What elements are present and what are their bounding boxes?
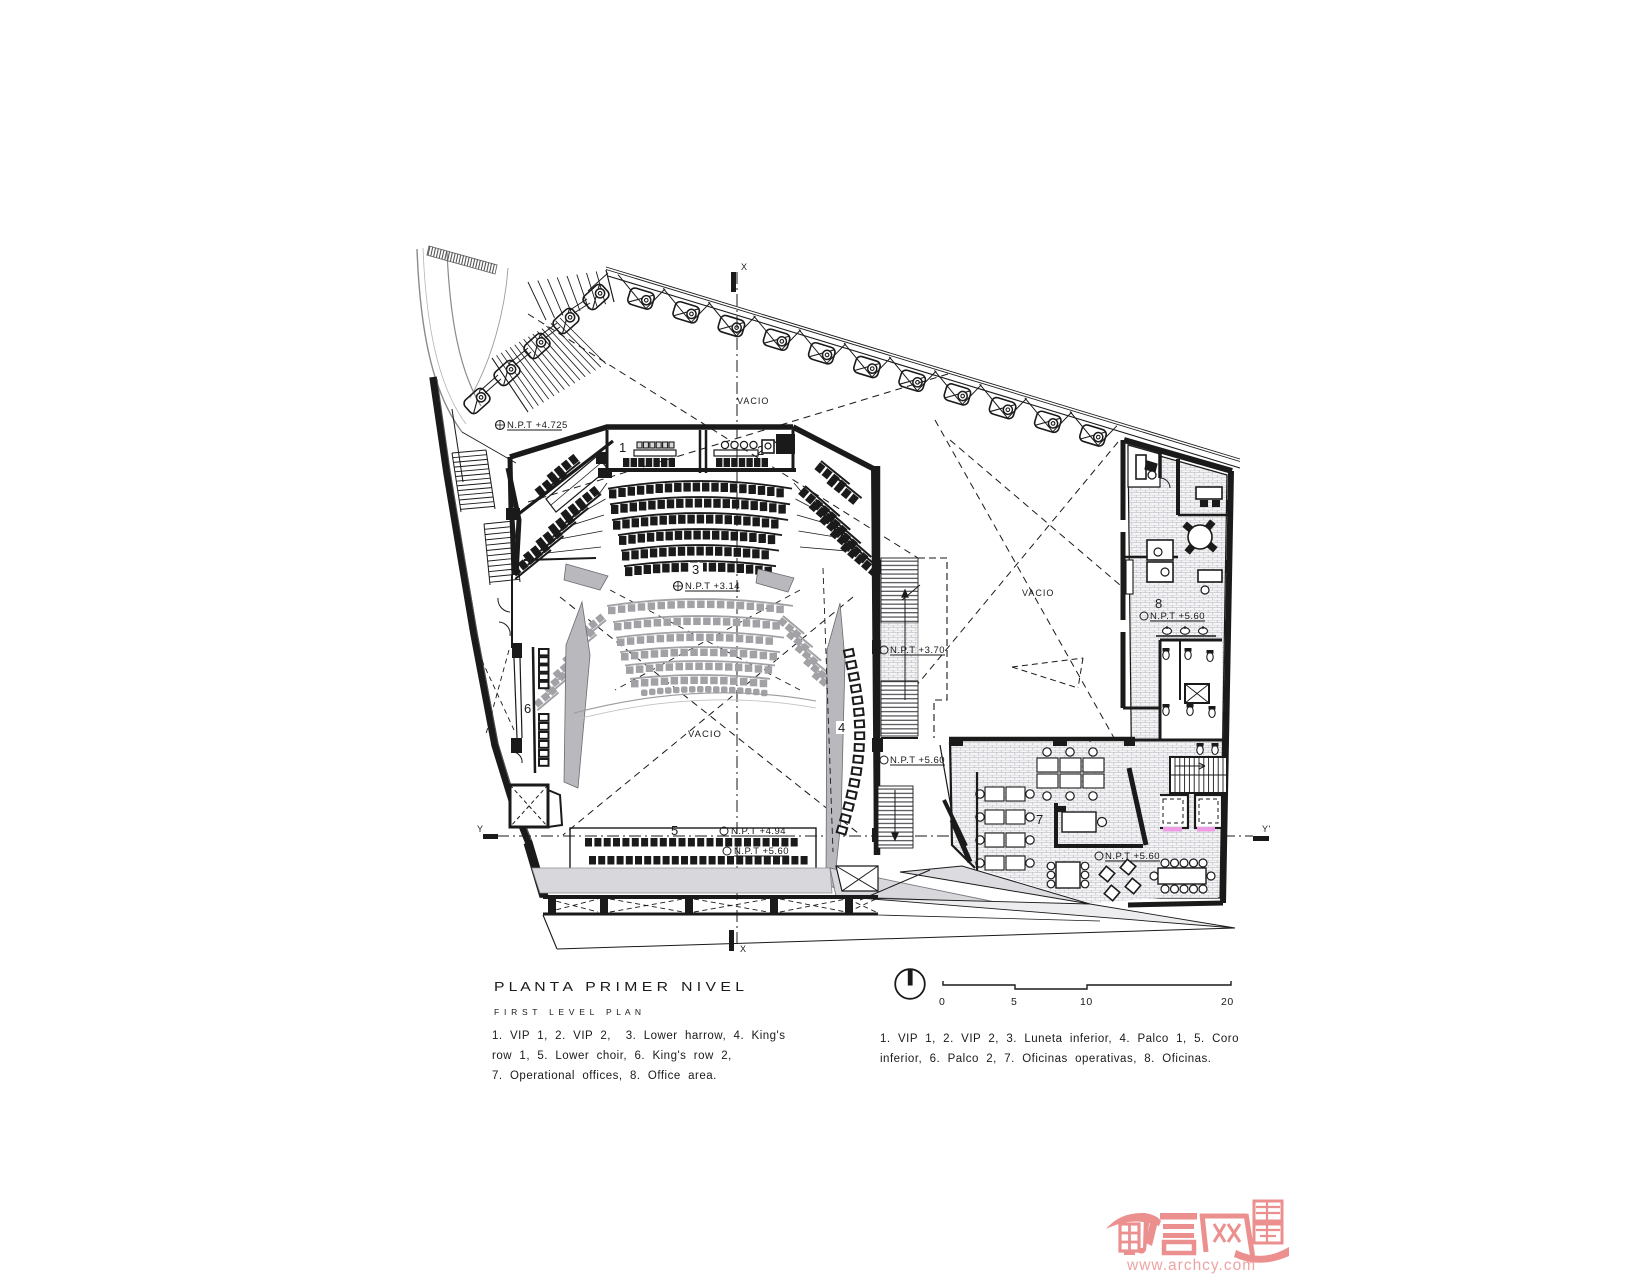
svg-text:7: 7 [1036, 812, 1044, 827]
svg-text:inferior, 6. Palco 2, 7.: inferior, 6. Palco 2, 7. Oficinas operat… [880, 1053, 1212, 1065]
svg-text:X: X [741, 262, 748, 272]
svg-text:P L A N T A P R I M E R N: P L A N T A P R I M E R N I V E L [494, 980, 744, 994]
svg-text:N.P.T +5.60: N.P.T +5.60 [734, 846, 789, 857]
svg-text:0: 0 [939, 996, 945, 1008]
svg-text:1. VIP 1, 2. VIP 2, 3.: 1. VIP 1, 2. VIP 2, 3. Luneta inferior, … [880, 1033, 1239, 1045]
svg-text:F I R S T L E V E L P L A: F I R S T L E V E L P L A N [494, 1007, 642, 1017]
svg-text:VACIO: VACIO [688, 729, 722, 740]
svg-text:Y: Y [477, 824, 484, 834]
svg-text:1: 1 [619, 440, 627, 455]
svg-text:N.P.T +3.14: N.P.T +3.14 [685, 581, 740, 592]
svg-text:20: 20 [1221, 996, 1234, 1008]
svg-text:7. Operational offices, 8.: 7. Operational offices, 8. Office area. [492, 1070, 717, 1082]
svg-text:N.P.T +5.60: N.P.T +5.60 [890, 755, 945, 766]
svg-text:row 1, 5. Lower choir, 6.: row 1, 5. Lower choir, 6. King's row 2, [492, 1050, 732, 1062]
svg-text:3: 3 [692, 562, 700, 577]
svg-text:4: 4 [838, 720, 846, 735]
svg-text:N.P.T +5.60: N.P.T +5.60 [1105, 851, 1160, 862]
svg-text:VACIO: VACIO [1022, 588, 1054, 598]
svg-text:X: X [740, 944, 747, 954]
svg-text:10: 10 [1080, 996, 1093, 1008]
svg-text:N.P.T +4.725: N.P.T +4.725 [507, 420, 568, 431]
svg-text:N.P.T +3.70: N.P.T +3.70 [890, 645, 945, 656]
svg-text:1. VIP 1, 2. VIP 2, 3.: 1. VIP 1, 2. VIP 2, 3. Lower harrow, 4. … [492, 1030, 786, 1042]
svg-text:6: 6 [524, 701, 532, 716]
svg-text:N.P.T +5.60: N.P.T +5.60 [1150, 611, 1205, 622]
svg-text:5: 5 [1011, 996, 1017, 1008]
svg-text:www.archcy.com: www.archcy.com [1126, 1257, 1256, 1274]
svg-text:Y': Y' [1262, 824, 1271, 834]
svg-text:5: 5 [671, 823, 679, 838]
svg-text:VACIO: VACIO [737, 396, 769, 406]
svg-text:8: 8 [1155, 596, 1163, 611]
